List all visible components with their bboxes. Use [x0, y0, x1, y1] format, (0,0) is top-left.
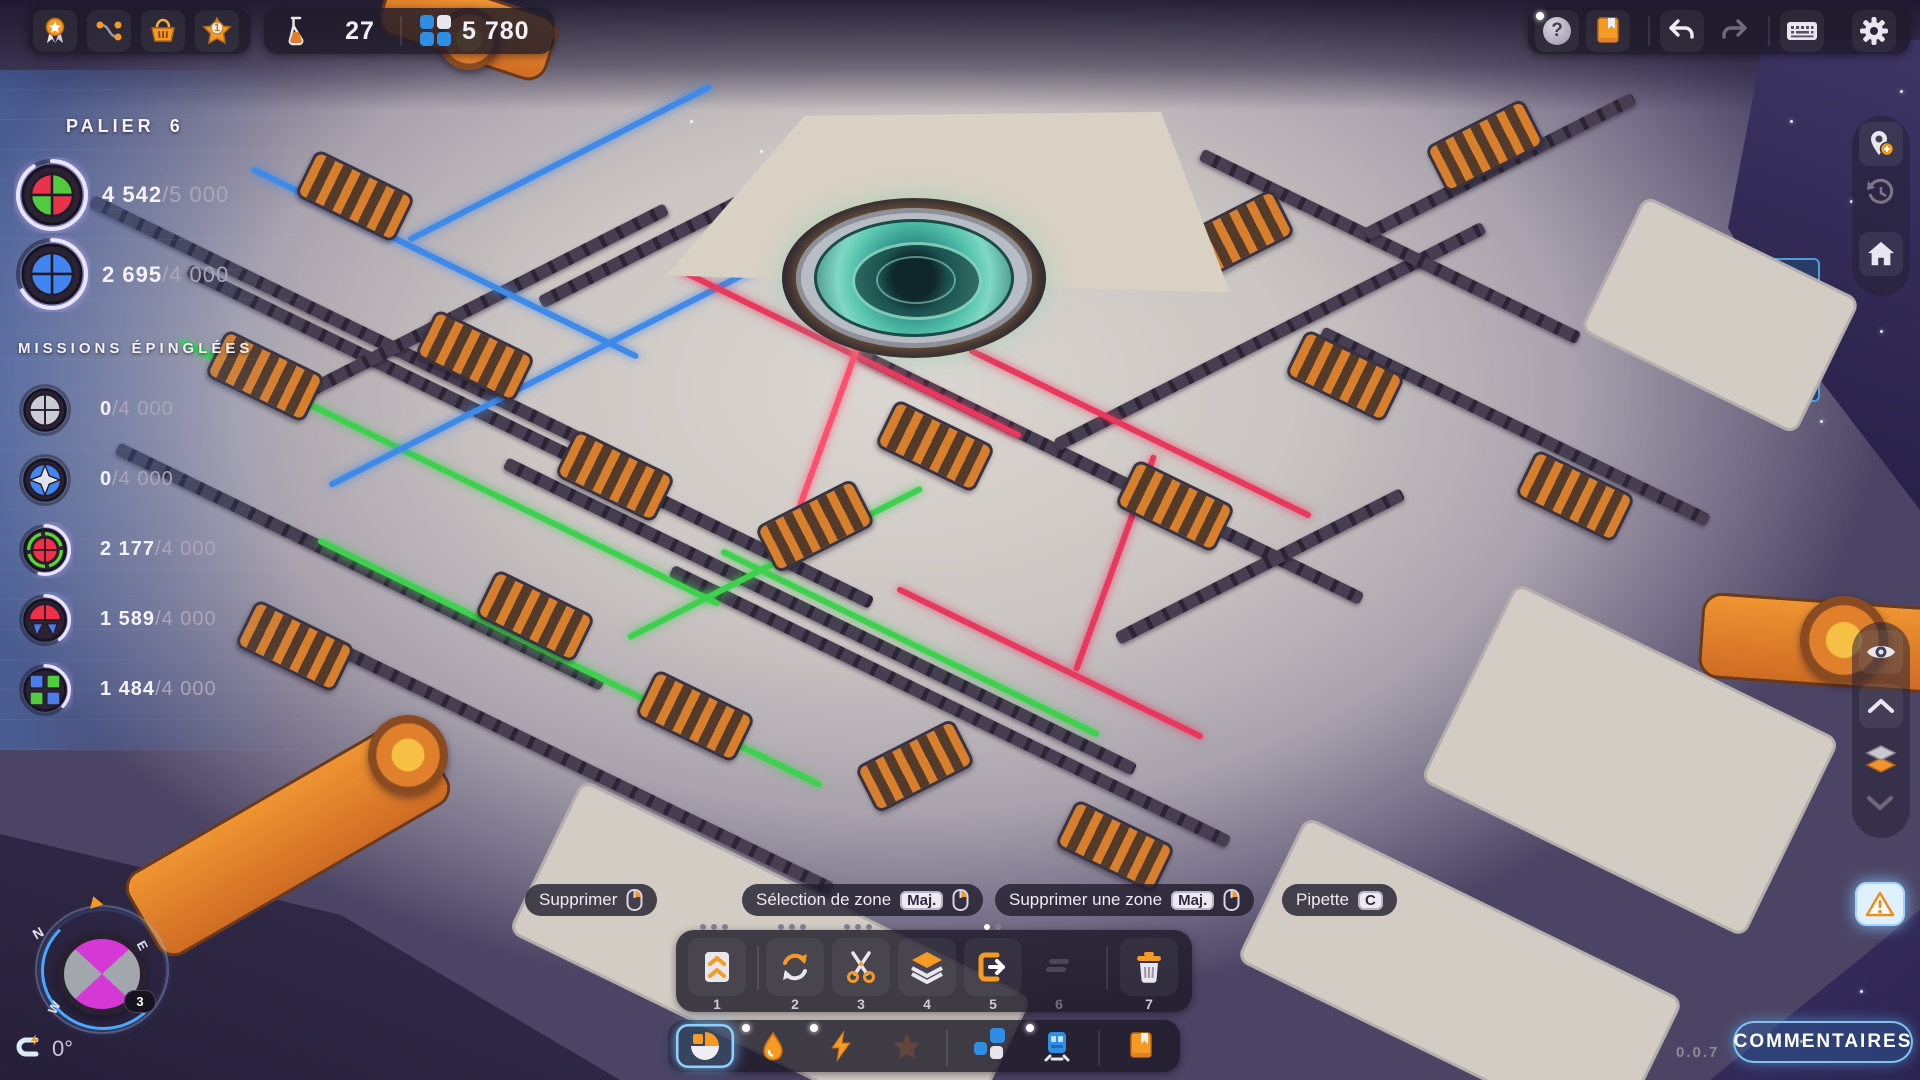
alert-button[interactable]	[1855, 882, 1905, 926]
medal-icon	[40, 16, 70, 46]
warning-icon	[1865, 891, 1895, 918]
layer-up-button[interactable]	[1859, 684, 1903, 728]
trains-tool-button[interactable]	[1028, 1024, 1086, 1068]
flask-icon	[280, 14, 312, 53]
journal-button[interactable]	[1586, 10, 1630, 52]
keyboard-icon	[1786, 19, 1818, 43]
divider	[400, 16, 402, 46]
train-icon	[1043, 1030, 1071, 1062]
tool-rotate[interactable]	[766, 938, 824, 996]
version-label: 0.0.7	[1676, 1044, 1719, 1061]
divider	[1098, 1030, 1100, 1066]
tool-cut[interactable]	[832, 938, 890, 996]
chevron-down-icon	[1866, 794, 1894, 812]
mission-badge[interactable]	[17, 382, 73, 438]
tier-goal-progress: 2 695/4 000	[102, 262, 229, 288]
hint-delete: Supprimer	[525, 884, 657, 916]
tool-layers[interactable]	[898, 938, 956, 996]
mission-progress: 0/4 000	[100, 468, 174, 491]
hint-area-delete: Supprimer une zone Maj.	[995, 884, 1254, 916]
magnet-icon	[14, 1032, 42, 1065]
notification-dot	[1536, 12, 1544, 20]
mission-progress: 2 177/4 000	[100, 538, 217, 561]
trash-icon	[1134, 950, 1164, 984]
tool-paste-disabled	[1030, 938, 1088, 996]
compass-layer-badge: 3	[124, 990, 156, 1013]
disabled-tool-icon	[1043, 951, 1075, 983]
mouse-right-click-icon	[1223, 888, 1240, 912]
achievements-button[interactable]	[33, 10, 77, 52]
export-icon	[977, 951, 1009, 983]
hint-area-select: Sélection de zone Maj.	[742, 884, 983, 916]
shapes-tool-button-selected[interactable]	[676, 1024, 734, 1068]
tool-number: 4	[898, 996, 956, 1012]
platforms-tool-button[interactable]	[962, 1024, 1020, 1068]
notification-dot	[742, 1024, 750, 1032]
shapes-count-icon	[420, 15, 452, 47]
tool-export[interactable]	[964, 938, 1022, 996]
basket-icon	[148, 16, 178, 46]
hub-core-ring	[876, 256, 956, 304]
divider	[1648, 16, 1650, 46]
settings-button[interactable]	[1852, 10, 1896, 52]
tool-number: 6	[1030, 996, 1088, 1012]
tool-charges-dots	[778, 924, 806, 930]
tool-number: 7	[1120, 996, 1178, 1012]
shapes-count-value: 5 780	[462, 17, 530, 46]
mouse-right-click-icon	[626, 888, 643, 912]
divider	[757, 946, 759, 990]
undo-button[interactable]	[1660, 10, 1704, 52]
tool-number: 3	[832, 996, 890, 1012]
tool-charges-dots	[700, 924, 728, 930]
game-viewport[interactable]	[0, 0, 1920, 1080]
rotate-icon	[778, 950, 812, 984]
layers-icon	[1864, 744, 1898, 776]
mission-progress: 0/4 000	[100, 398, 174, 421]
chevron-up-icon	[1867, 697, 1895, 715]
history-icon	[1866, 178, 1896, 208]
tier-goal-badge[interactable]	[14, 236, 90, 312]
node-graph-icon	[94, 16, 124, 46]
shapes-quadrant-icon	[689, 1030, 721, 1062]
notification-dot	[810, 1024, 818, 1032]
tool-number: 2	[766, 996, 824, 1012]
mission-badge[interactable]	[17, 662, 73, 718]
tool-delete[interactable]	[1120, 938, 1178, 996]
pinned-missions-title: MISSIONS ÉPINGLÉES	[18, 340, 253, 357]
mouse-right-click-icon	[952, 888, 969, 912]
tier-title: PALIER 6	[66, 116, 184, 137]
eye-icon	[1865, 640, 1897, 664]
notification-dot	[1026, 1024, 1034, 1032]
pin-add-icon	[1866, 129, 1896, 159]
layer-stack-icon	[909, 950, 945, 984]
shift-key-badge: Maj.	[900, 891, 943, 910]
rank-value: 1	[214, 22, 220, 34]
tier-goal-progress: 4 542/5 000	[102, 182, 229, 208]
energy-tool-button[interactable]	[812, 1024, 870, 1068]
star-icon	[892, 1031, 922, 1061]
divider	[946, 1030, 948, 1066]
shift-key-badge: Maj.	[1171, 891, 1214, 910]
c-key-badge: C	[1358, 891, 1383, 910]
journal-tool-button[interactable]	[1112, 1024, 1170, 1068]
feedback-button[interactable]: COMMENTAIRES	[1733, 1021, 1913, 1063]
redo-icon	[1720, 18, 1748, 44]
mission-badge[interactable]	[17, 522, 73, 578]
droplet-icon	[761, 1031, 785, 1061]
mission-badge[interactable]	[17, 592, 73, 648]
robot-arm-joint	[368, 715, 448, 795]
research-points-value: 27	[330, 17, 390, 46]
layer-down-button[interactable]	[1866, 794, 1894, 817]
tool-number: 5	[964, 996, 1022, 1012]
redo-button[interactable]	[1712, 10, 1756, 52]
mission-progress: 1 589/4 000	[100, 608, 217, 631]
history-button[interactable]	[1866, 178, 1896, 213]
rank-button[interactable]: 1	[195, 10, 239, 52]
divider	[1768, 16, 1770, 46]
fluids-tool-button[interactable]	[744, 1024, 802, 1068]
shop-button[interactable]	[141, 10, 185, 52]
shortcuts-button[interactable]	[1780, 10, 1824, 52]
tool-charges-dots	[844, 924, 872, 930]
question-icon: ?	[1543, 17, 1571, 45]
hint-pipette: Pipette C	[1282, 884, 1397, 916]
lift-selection-icon	[702, 950, 732, 984]
compass-angle-value: 0°	[52, 1036, 73, 1062]
lightning-icon	[828, 1030, 854, 1062]
game-window: 1 27 5 780 PALIER 6 4 542/5 000	[0, 0, 1920, 1080]
layers-indicator[interactable]	[1859, 738, 1903, 782]
tool-number: 1	[688, 996, 746, 1012]
tier-goal-badge[interactable]	[14, 157, 90, 233]
save-viewpoint-button[interactable]	[1859, 122, 1903, 166]
star-tool-button-disabled	[878, 1024, 936, 1068]
undo-icon	[1668, 18, 1696, 44]
book-icon	[1594, 16, 1622, 46]
tool-charges-dots	[984, 924, 1001, 930]
mission-progress: 1 484/4 000	[100, 678, 217, 701]
divider	[1106, 946, 1108, 990]
scissors-icon	[845, 950, 877, 984]
tool-lift-selection[interactable]	[688, 938, 746, 996]
milestones-button[interactable]	[87, 10, 131, 52]
book-icon	[1127, 1030, 1155, 1062]
gear-icon	[1859, 16, 1889, 46]
visibility-button[interactable]	[1859, 630, 1903, 674]
home-icon	[1866, 239, 1896, 269]
mission-badge[interactable]	[17, 452, 73, 508]
home-button[interactable]	[1859, 232, 1903, 276]
